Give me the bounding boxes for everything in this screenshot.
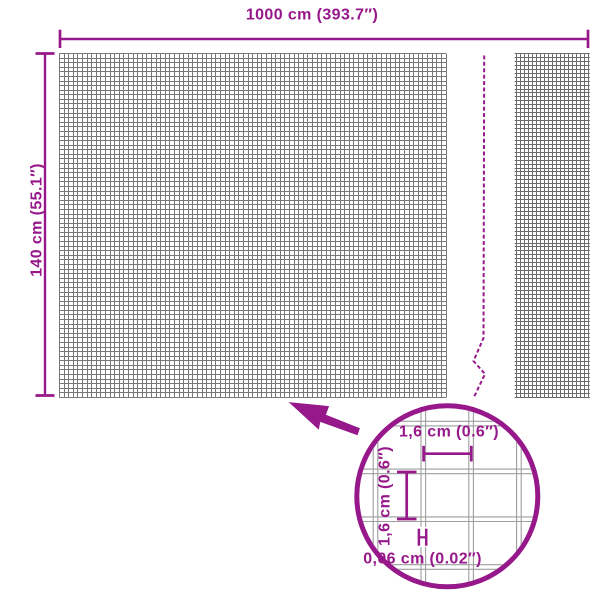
svg-text:0,06 cm (0.02″): 0,06 cm (0.02″) (363, 551, 482, 568)
svg-text:1000 cm (393.7″): 1000 cm (393.7″) (246, 7, 378, 24)
svg-text:1,6 cm (0.6″): 1,6 cm (0.6″) (377, 446, 394, 546)
svg-text:1,6 cm (0.6″): 1,6 cm (0.6″) (399, 424, 499, 441)
svg-text:140 cm (55.1″): 140 cm (55.1″) (29, 163, 46, 277)
